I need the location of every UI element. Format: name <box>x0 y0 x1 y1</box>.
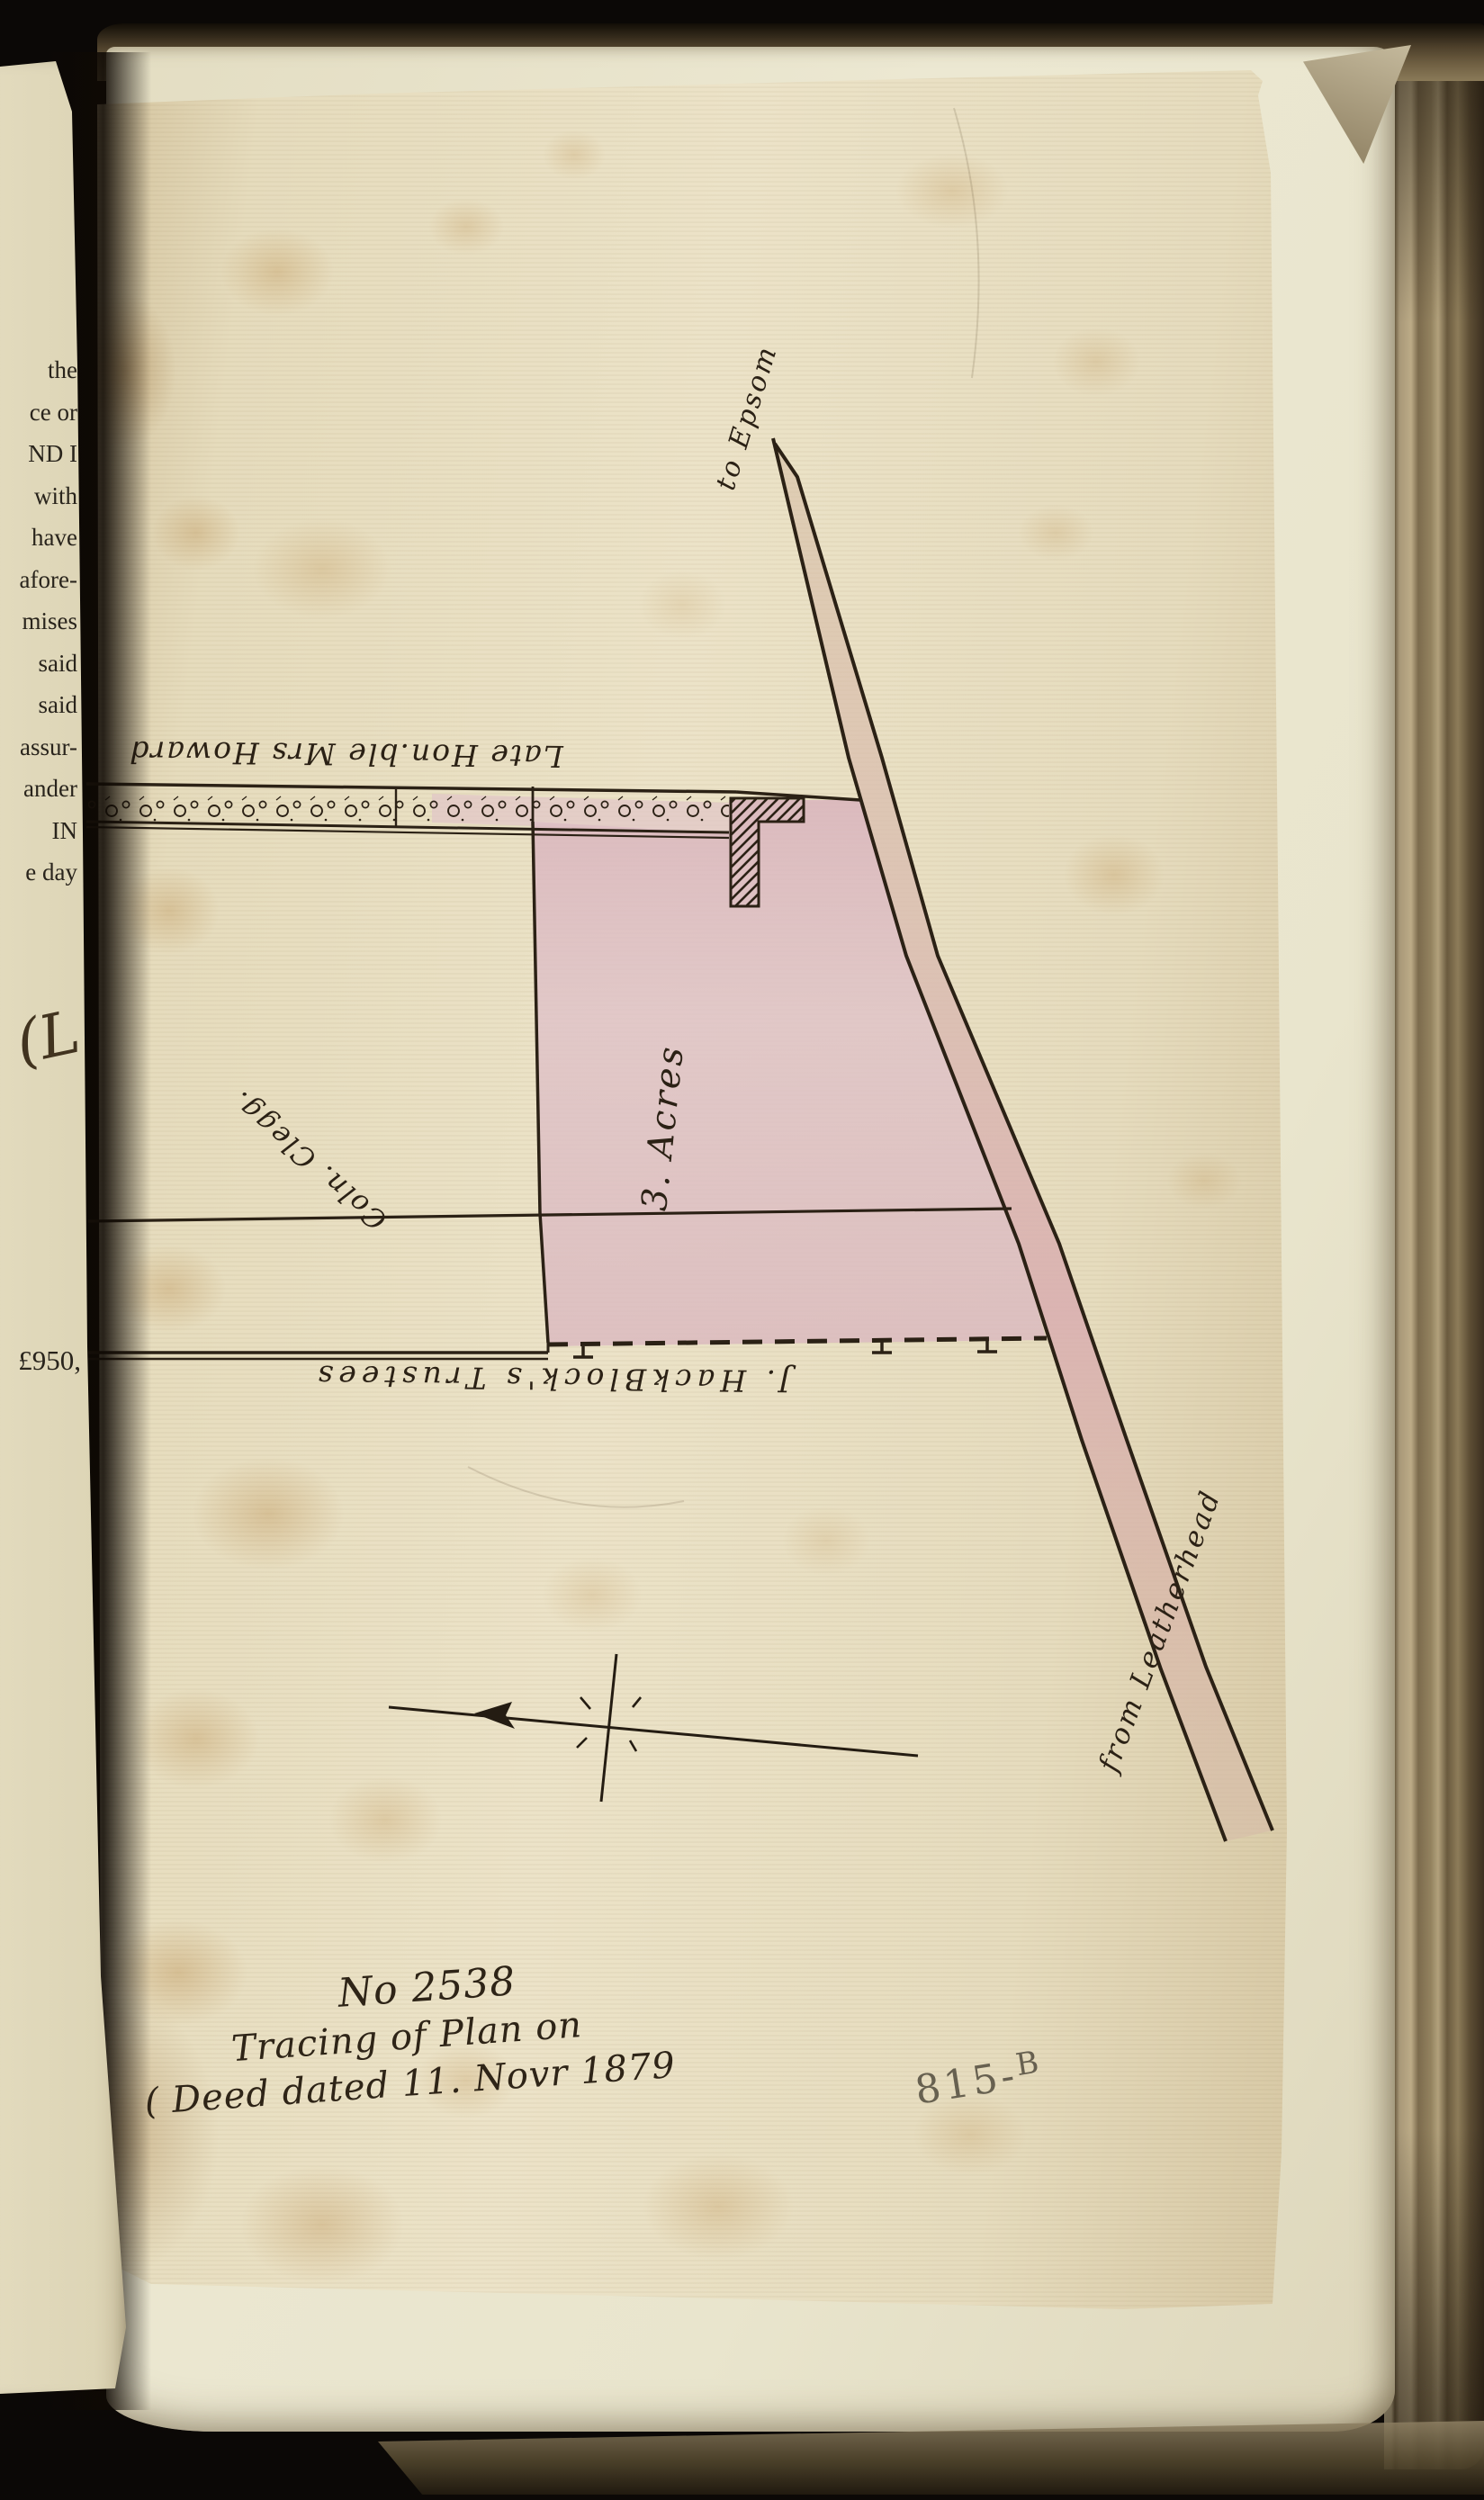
amount-fragment: £950, <box>0 1344 81 1377</box>
signature-fragment: (L. <box>10 993 104 1077</box>
facing-page-text-fragments: the ce or ND I with have afore- mises sa… <box>0 349 77 894</box>
reference-suffix: B <box>1013 2044 1045 2083</box>
south-owner-label: J. HackBlock's Trustees <box>312 1359 791 1399</box>
page-stack-shading <box>1384 31 1484 2469</box>
book-scan: to Epsom Late Hon.ble Mrs Howard Coln. C… <box>0 0 1484 2500</box>
book-bottom-edge <box>378 2421 1484 2495</box>
north-owner-label: Late Hon.ble Mrs Howard <box>128 734 563 774</box>
